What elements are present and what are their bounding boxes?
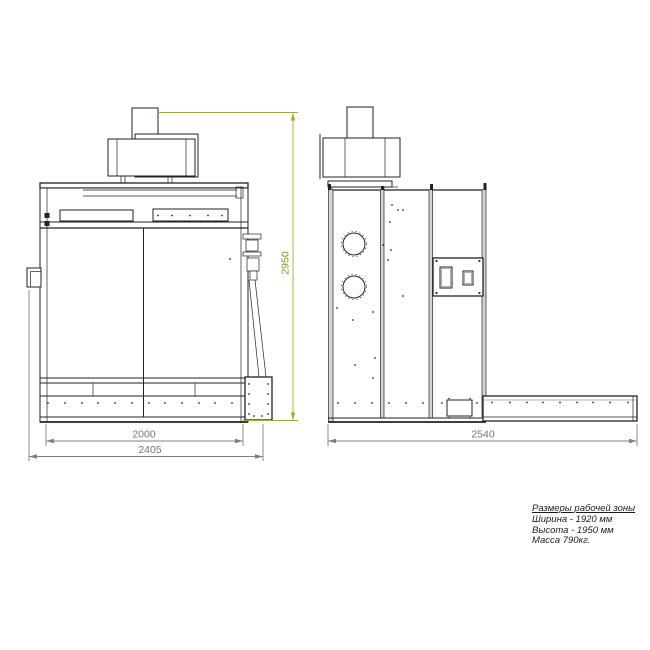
dim-label-2405: 2405	[138, 444, 162, 456]
front-fan-housing	[108, 134, 198, 184]
dimension-side-depth: 2540	[328, 424, 637, 446]
dim-label-2540: 2540	[471, 429, 495, 441]
notes-title: Размеры рабочей зоны	[532, 504, 644, 515]
technical-drawing: 2000 2405 2950 2540	[0, 0, 650, 650]
notes-line-mass: Масса 790кг.	[532, 536, 644, 547]
front-collection-bin	[245, 377, 272, 420]
side-floor-duct	[483, 396, 637, 421]
dim-label-2000: 2000	[132, 429, 156, 441]
side-body	[328, 183, 487, 422]
front-view	[27, 108, 272, 422]
side-control-panel	[433, 258, 483, 296]
side-access-hatch	[441, 398, 478, 419]
drawing-canvas: 2000 2405 2950 2540 Размеры рабочей зоны…	[0, 0, 650, 650]
side-portholes	[342, 232, 367, 300]
dimension-front-inner-width: 2000	[46, 424, 243, 446]
side-exhaust-chimney	[347, 107, 373, 138]
front-left-bracket	[27, 268, 41, 287]
dim-label-2950: 2950	[280, 251, 292, 275]
side-view	[320, 107, 637, 422]
side-fan-housing	[320, 134, 400, 190]
work-zone-notes: Размеры рабочей зоны Ширина - 1920 мм Вы…	[532, 504, 644, 547]
